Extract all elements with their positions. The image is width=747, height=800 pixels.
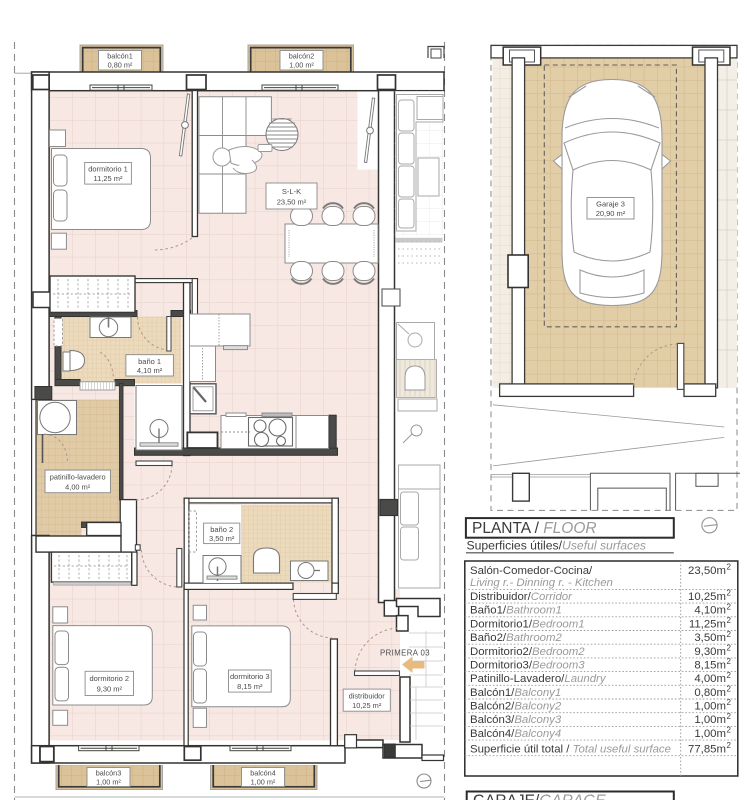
svg-text:11,25m: 11,25m	[689, 618, 726, 630]
svg-text:11,25 m²: 11,25 m²	[93, 174, 123, 183]
svg-text:9,30 m²: 9,30 m²	[97, 685, 123, 694]
svg-text:4,10m: 4,10m	[694, 605, 726, 617]
svg-text:1,00 m²: 1,00 m²	[96, 778, 121, 787]
svg-text:10,25m: 10,25m	[688, 591, 726, 603]
svg-text:Balcón1/Balcony1: Balcón1/Balcony1	[470, 687, 561, 699]
svg-text:4,00 m²: 4,00 m²	[65, 482, 91, 491]
svg-text:Salón-Comedor-Cocina/: Salón-Comedor-Cocina/	[470, 565, 593, 577]
svg-text:1,00 m²: 1,00 m²	[289, 61, 314, 70]
svg-text:2: 2	[727, 602, 732, 611]
svg-text:Baño2/Bathroom2: Baño2/Bathroom2	[470, 632, 562, 644]
svg-text:1,00m: 1,00m	[694, 701, 726, 713]
svg-text:baño 1: baño 1	[138, 357, 161, 366]
svg-text:Dormitorio1/Bedroom1: Dormitorio1/Bedroom1	[470, 618, 585, 630]
svg-text:20,90 m²: 20,90 m²	[596, 209, 626, 218]
svg-text:dormitorio 1: dormitorio 1	[88, 165, 128, 174]
svg-text:1,00m: 1,00m	[694, 728, 726, 740]
svg-text:Balcón2/Balcony2: Balcón2/Balcony2	[470, 701, 562, 713]
svg-text:4,10 m²: 4,10 m²	[137, 366, 163, 375]
svg-text:balcón4: balcón4	[250, 769, 276, 778]
svg-text:10,25 m²: 10,25 m²	[352, 701, 382, 710]
svg-text:2: 2	[727, 657, 732, 666]
svg-text:2: 2	[727, 685, 732, 694]
svg-text:3,50 m²: 3,50 m²	[209, 534, 235, 543]
svg-text:S-L-K: S-L-K	[282, 187, 301, 196]
svg-text:Dormitorio3/Bedroom3: Dormitorio3/Bedroom3	[470, 659, 585, 671]
svg-text:Living r.- Dinning r. - Kitche: Living r.- Dinning r. - Kitchen	[470, 577, 613, 589]
svg-text:1,00m: 1,00m	[694, 714, 726, 726]
svg-text:balcón3: balcón3	[96, 769, 122, 778]
svg-text:Balcón3/Balcony3: Balcón3/Balcony3	[470, 714, 562, 726]
svg-text:4,00m: 4,00m	[694, 673, 726, 685]
svg-text:9,30m: 9,30m	[694, 646, 726, 658]
svg-text:23,50 m²: 23,50 m²	[277, 198, 307, 207]
svg-text:GARAJE/GARAGE: GARAJE/GARAGE	[473, 793, 606, 800]
svg-text:2: 2	[727, 712, 732, 721]
svg-text:Dormitorio2/Bedroom2: Dormitorio2/Bedroom2	[470, 646, 585, 658]
svg-text:2: 2	[727, 589, 732, 598]
svg-text:77,85m: 77,85m	[688, 744, 726, 756]
svg-text:PRIMERA 03: PRIMERA 03	[380, 649, 430, 658]
svg-text:Superficies útiles/Useful surf: Superficies útiles/Useful surfaces	[467, 539, 647, 553]
svg-text:2: 2	[727, 741, 732, 750]
svg-text:3,50m: 3,50m	[694, 632, 726, 644]
svg-text:PLANTA / FLOOR: PLANTA / FLOOR	[472, 520, 597, 537]
svg-text:2: 2	[727, 630, 732, 639]
svg-text:0,80m: 0,80m	[694, 687, 726, 699]
svg-text:8,15 m²: 8,15 m²	[237, 682, 263, 691]
svg-text:Balcón4/Balcony4: Balcón4/Balcony4	[470, 728, 561, 740]
svg-text:2: 2	[727, 671, 732, 680]
svg-text:23,50m: 23,50m	[688, 565, 726, 577]
svg-text:Superficie útil total / Total: Superficie útil total / Total useful sur…	[470, 744, 671, 756]
svg-text:2: 2	[727, 563, 732, 572]
svg-text:patinillo-lavadero: patinillo-lavadero	[50, 473, 106, 482]
svg-text:baño 2: baño 2	[210, 525, 233, 534]
svg-text:balcón1: balcón1	[107, 52, 133, 61]
svg-text:2: 2	[727, 726, 732, 735]
svg-text:dormitorio 2: dormitorio 2	[89, 674, 129, 683]
svg-text:2: 2	[727, 616, 732, 625]
svg-text:2: 2	[727, 698, 732, 707]
svg-text:0,80 m²: 0,80 m²	[108, 61, 133, 70]
svg-text:Patinillo-Lavadero/Laundry: Patinillo-Lavadero/Laundry	[470, 673, 607, 685]
svg-text:distribuidor: distribuidor	[349, 691, 386, 700]
svg-text:dormitorio 3: dormitorio 3	[230, 672, 270, 681]
svg-text:2: 2	[727, 644, 732, 653]
svg-text:1,00 m²: 1,00 m²	[251, 778, 276, 787]
svg-text:Baño1/Bathroom1: Baño1/Bathroom1	[470, 605, 562, 617]
svg-text:Garaje 3: Garaje 3	[596, 200, 625, 209]
svg-text:8,15m: 8,15m	[694, 659, 726, 671]
svg-text:balcón2: balcón2	[289, 52, 315, 61]
svg-text:Distribuidor/Corridor: Distribuidor/Corridor	[470, 591, 573, 603]
